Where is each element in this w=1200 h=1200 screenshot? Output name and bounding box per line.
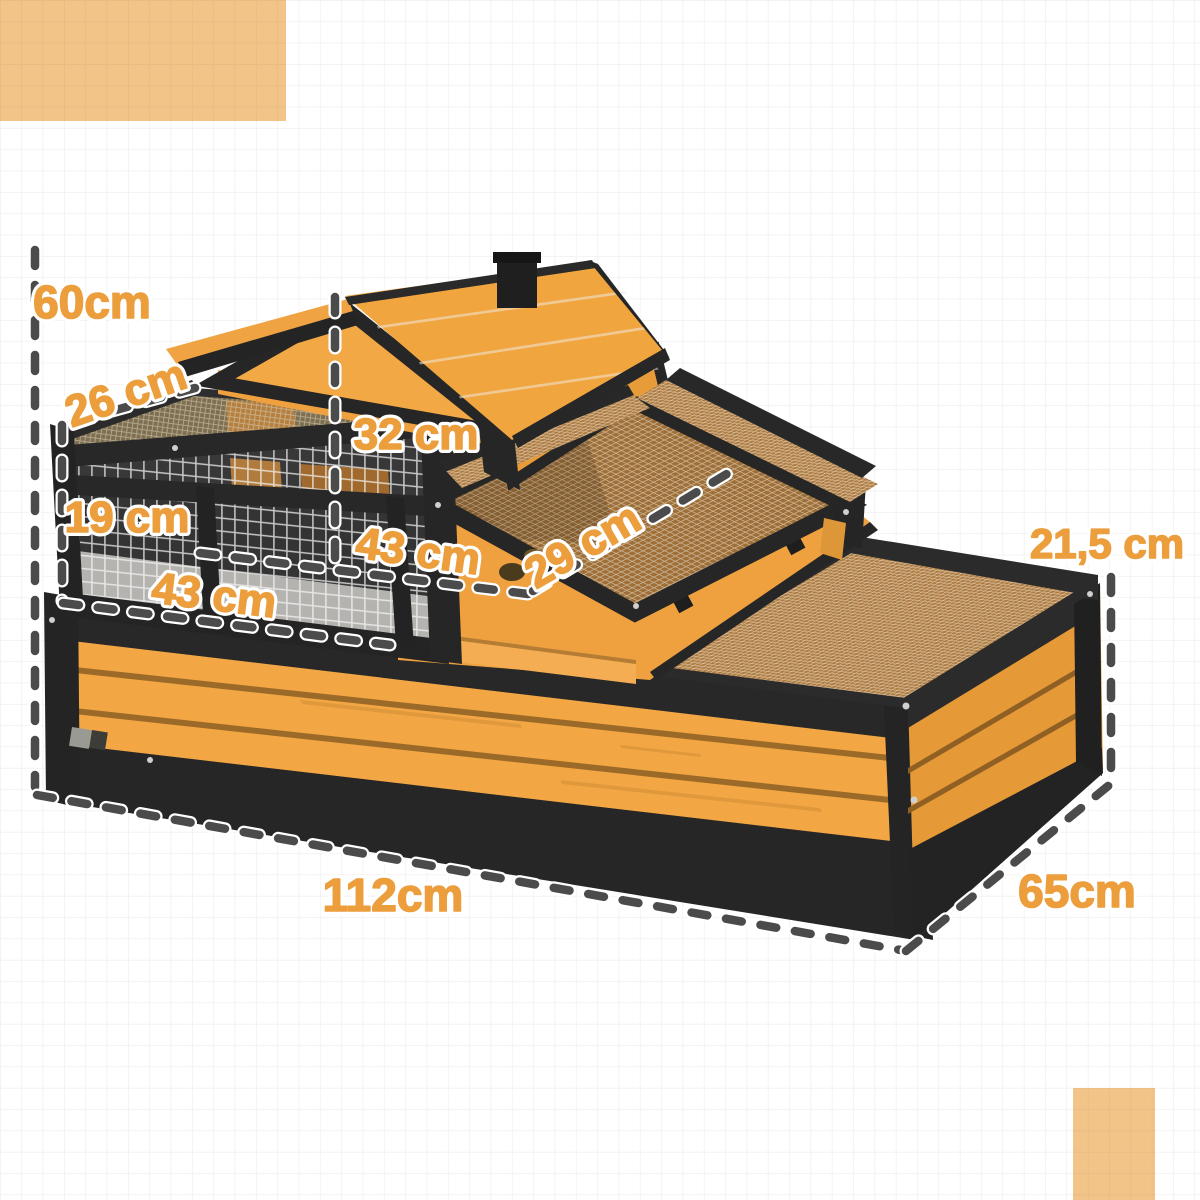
svg-text:21,5 cm: 21,5 cm [1030,520,1184,567]
svg-text:32 cm: 32 cm [354,410,479,459]
svg-text:19 cm: 19 cm [65,493,190,542]
svg-text:60cm: 60cm [33,276,151,328]
svg-text:112cm: 112cm [323,869,464,921]
svg-text:65cm: 65cm [1018,865,1136,917]
